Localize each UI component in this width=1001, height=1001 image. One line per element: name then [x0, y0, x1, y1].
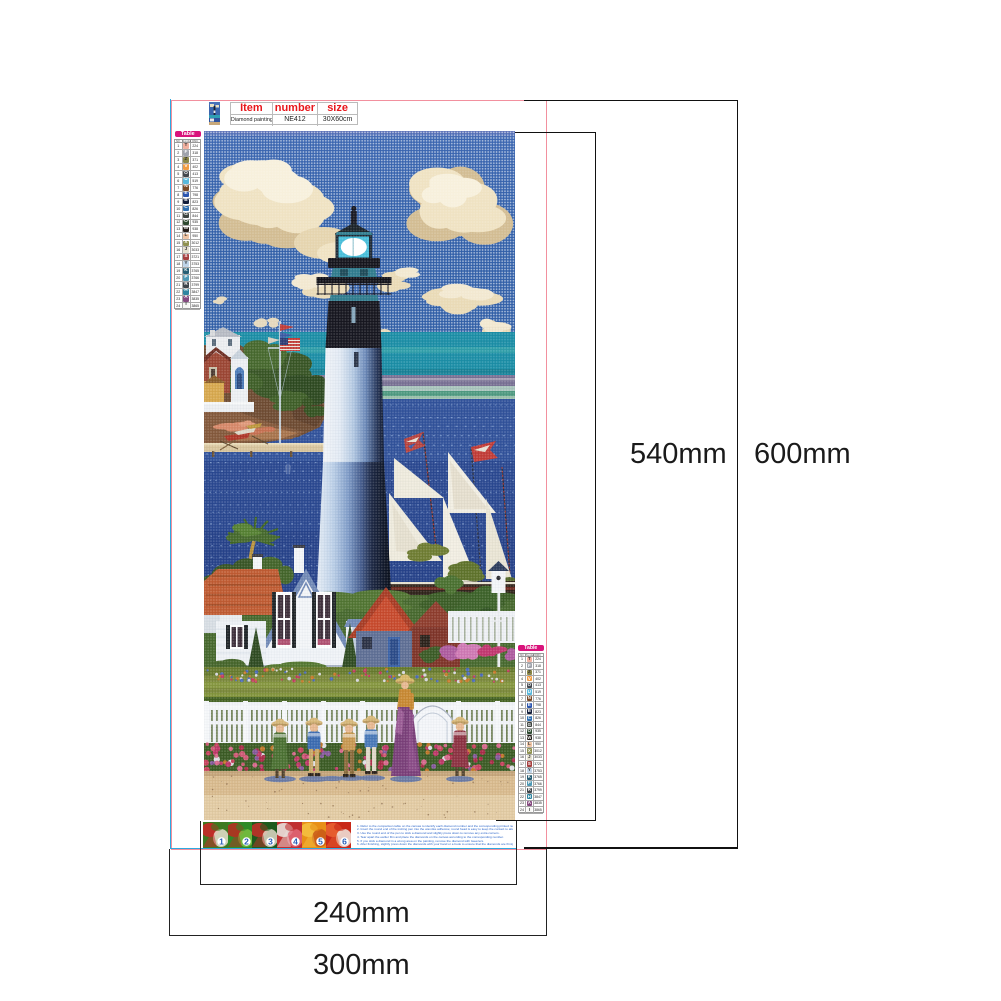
- svg-text:1: 1: [219, 837, 224, 847]
- svg-text:4: 4: [293, 837, 298, 847]
- svg-text:5: 5: [318, 837, 323, 847]
- svg-text:6: 6: [342, 837, 347, 847]
- svg-text:2: 2: [244, 837, 249, 847]
- svg-text:3: 3: [268, 837, 273, 847]
